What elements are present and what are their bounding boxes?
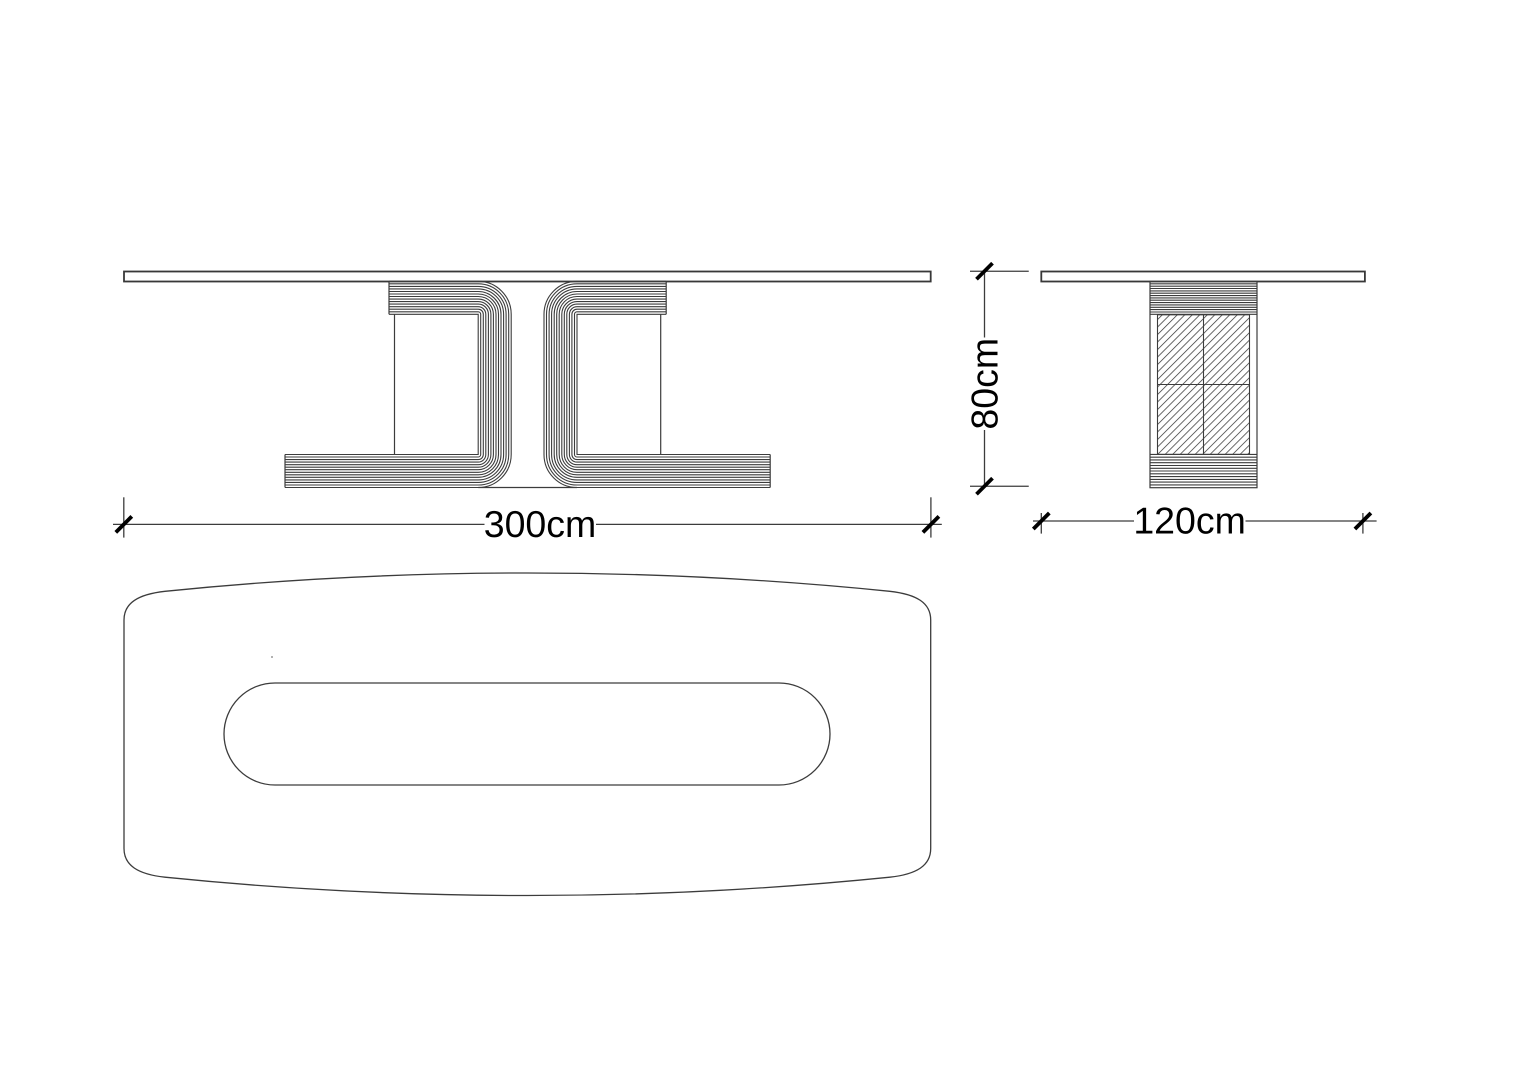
svg-text:120cm: 120cm: [1133, 500, 1246, 542]
svg-text:80cm: 80cm: [964, 338, 1006, 430]
svg-text:300cm: 300cm: [484, 503, 597, 545]
